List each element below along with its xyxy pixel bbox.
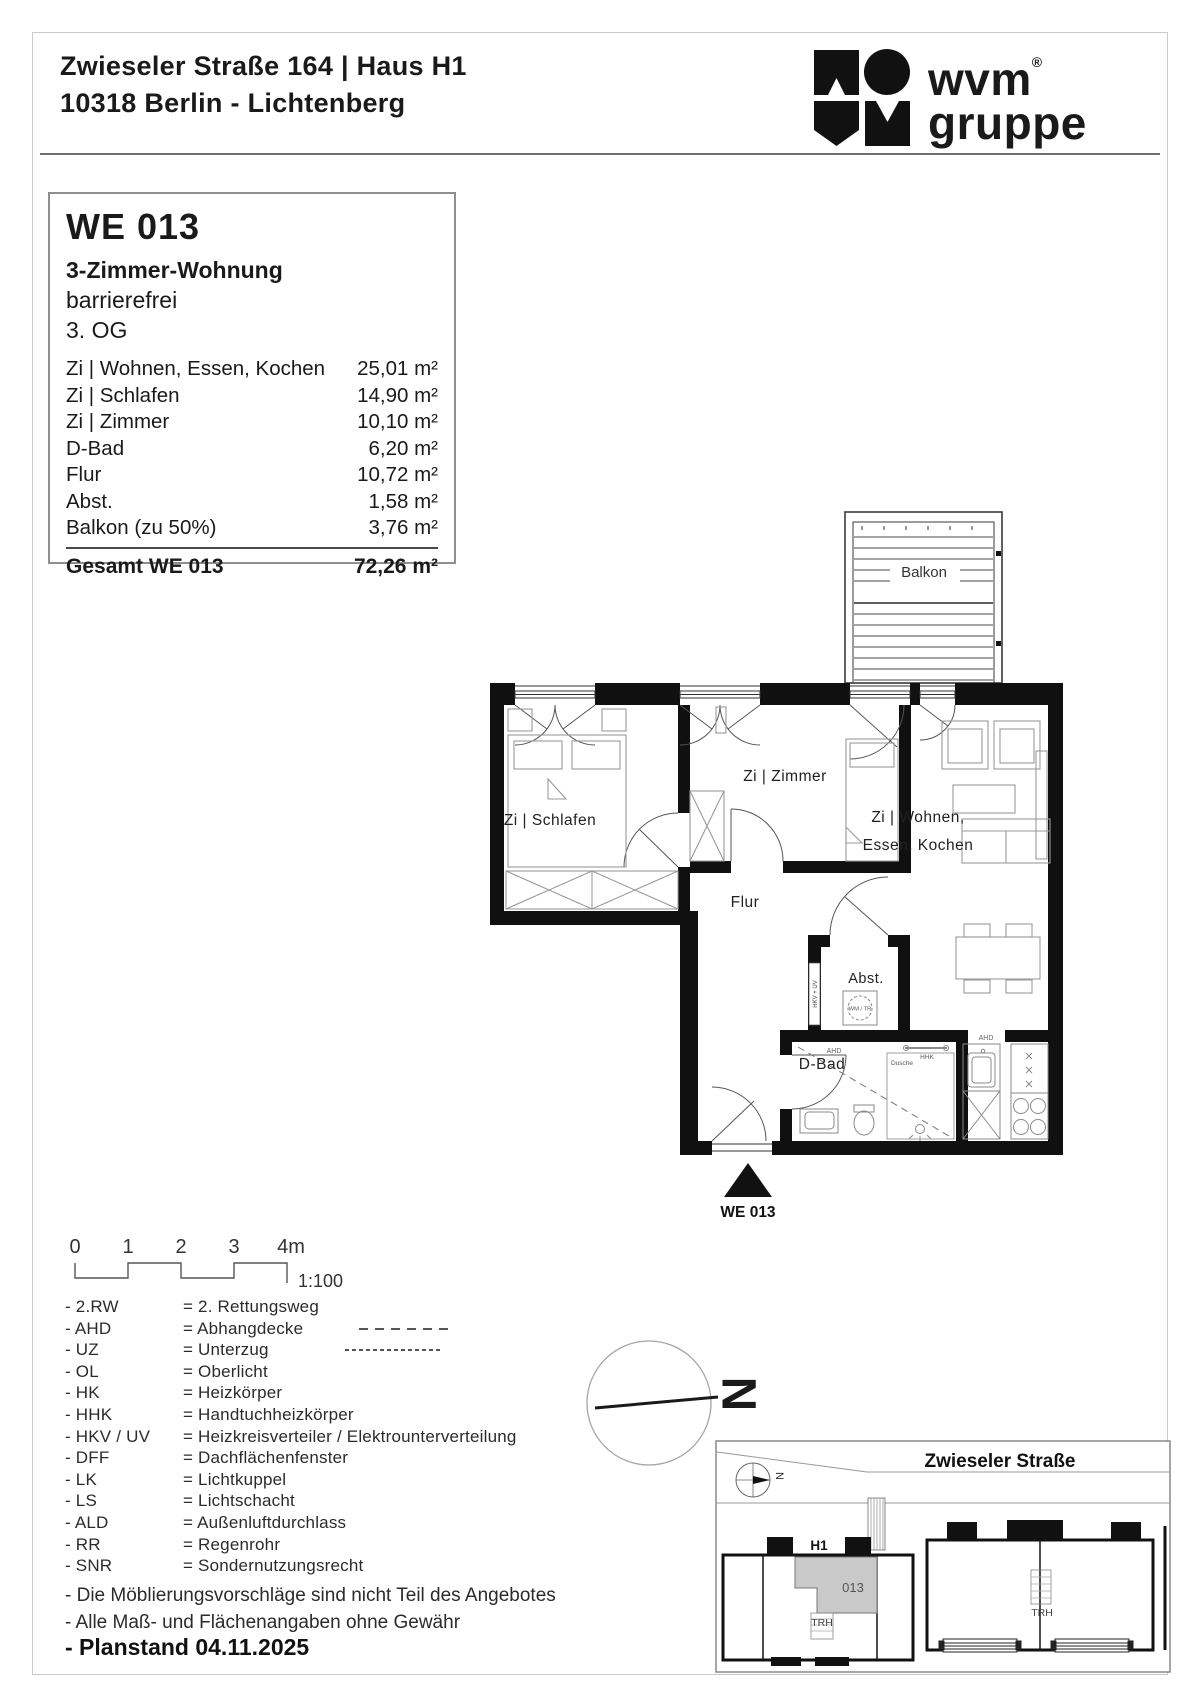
legend-meaning: = Abhangdecke <box>183 1318 303 1340</box>
room-area: 14,90 m² <box>357 383 438 410</box>
room-area: 10,10 m² <box>357 409 438 436</box>
room-label: Abst. <box>66 489 113 516</box>
table-row: Zi | Schlafen14,90 m² <box>66 383 438 410</box>
scale-bar: 0 1 2 3 4m 1:100 <box>55 1235 365 1297</box>
legend-row: - AHD= Abhangdecke <box>65 1318 625 1340</box>
north-label: N <box>712 1377 765 1412</box>
scale-tick: 0 <box>69 1236 80 1258</box>
trh-left-label: TRH <box>811 1617 833 1629</box>
legend-meaning: = 2. Rettungsweg <box>183 1296 319 1318</box>
wm-tr-label: WM / TR <box>849 1007 872 1013</box>
legend-abbr: - ALD <box>65 1512 183 1534</box>
room-label-schlafen: Zi | Schlafen <box>504 812 596 829</box>
legend-abbr: - SNR <box>65 1555 183 1577</box>
floor-plan: Balkon <box>450 495 1090 1225</box>
legend-abbr: - AHD <box>65 1318 183 1340</box>
legend-abbr: - UZ <box>65 1339 183 1361</box>
table-row: Balkon (zu 50%)3,76 m² <box>66 515 438 542</box>
building-right: TRH <box>927 1520 1165 1652</box>
table-row: Abst.1,58 m² <box>66 489 438 516</box>
room-area: 25,01 m² <box>357 356 438 383</box>
address-line2: 10318 Berlin - Lichtenberg <box>60 85 467 122</box>
legend-meaning: = Heizkörper <box>183 1382 282 1404</box>
door-swings <box>515 705 955 1151</box>
legend-row: - HK= Heizkörper <box>65 1382 625 1404</box>
legend-row: - HKV / UV= Heizkreisverteiler / Elektro… <box>65 1426 625 1448</box>
building-h1: 013 TRH <box>723 1537 913 1666</box>
legend-meaning: = Außenluftdurchlass <box>183 1512 346 1534</box>
legend-abbr: - DFF <box>65 1447 183 1469</box>
room-label: D-Bad <box>66 436 124 463</box>
total-area: 72,26 m² <box>354 555 438 579</box>
unit-013-label: 013 <box>842 1580 864 1595</box>
legend-row: - LS= Lichtschacht <box>65 1490 625 1512</box>
scale-tick: 2 <box>175 1236 186 1258</box>
unit-floor: 3. OG <box>66 317 438 344</box>
room-label: Zi | Wohnen, Essen, Kochen <box>66 356 325 383</box>
room-area: 3,76 m² <box>369 515 439 542</box>
scale-bar-line <box>75 1263 287 1283</box>
room-area-table: Zi | Wohnen, Essen, Kochen25,01 m² Zi | … <box>66 356 438 579</box>
scale-tick: 4m <box>277 1236 305 1258</box>
legend: - 2.RW= 2. Rettungsweg - AHD= Abhangdeck… <box>65 1296 625 1577</box>
legend-meaning: = Regenrohr <box>183 1534 280 1556</box>
dbad-door-gap <box>780 1055 792 1109</box>
legend-abbr: - 2.RW <box>65 1296 183 1318</box>
unit-type: 3-Zimmer-Wohnung <box>66 257 438 284</box>
total-label: Gesamt WE 013 <box>66 555 224 579</box>
room-label-balkon: Balkon <box>901 564 947 581</box>
address-line1: Zwieseler Straße 164 | Haus H1 <box>60 48 467 85</box>
walls <box>490 683 1063 1155</box>
dusche-label: Dusche <box>891 1060 913 1067</box>
unit-accessibility: barrierefrei <box>66 287 438 314</box>
legend-abbr: - RR <box>65 1534 183 1556</box>
table-row: D-Bad6,20 m² <box>66 436 438 463</box>
legend-meaning: = Lichtkuppel <box>183 1469 286 1491</box>
site-plan: Zwieseler Straße N 013 TRH H1 <box>715 1440 1171 1674</box>
room-label: Flur <box>66 462 101 489</box>
kitchen-ahd-label: AHD <box>979 1035 994 1042</box>
entrance-arrow-icon <box>724 1163 772 1197</box>
legend-abbr: - LK <box>65 1469 183 1491</box>
disclaimer-notes: - Die Möblierungsvorschläge sind nicht T… <box>65 1582 556 1636</box>
hkv-uv-label: HKV + UV <box>813 980 819 1008</box>
plan-date: - Planstand 04.11.2025 <box>65 1634 309 1661</box>
legend-row: - SNR= Sondernutzungsrecht <box>65 1555 625 1577</box>
room-label-wohnen-1: Zi | Wohnen, <box>871 809 964 826</box>
note-furnishing: - Die Möblierungsvorschläge sind nicht T… <box>65 1582 556 1609</box>
room-label: Balkon (zu 50%) <box>66 515 216 542</box>
site-north-label: N <box>773 1472 785 1480</box>
room-area: 10,72 m² <box>357 462 438 489</box>
legend-abbr: - HKV / UV <box>65 1426 183 1448</box>
room-label: Zi | Zimmer <box>66 409 169 436</box>
scale-tick: 3 <box>228 1236 239 1258</box>
building-h1-label: H1 <box>810 1538 828 1553</box>
legend-meaning: = Sondernutzungsrecht <box>183 1555 363 1577</box>
legend-meaning: = Lichtschacht <box>183 1490 295 1512</box>
dbad-ahd-label: AHD <box>827 1048 842 1055</box>
dotted-line-sample <box>345 1349 441 1351</box>
room-label-wohnen-2: Essen, Kochen <box>863 837 974 854</box>
street-label: Zwieseler Straße <box>924 1451 1075 1472</box>
legend-row: - DFF= Dachflächenfenster <box>65 1447 625 1469</box>
legend-row: - RR= Regenrohr <box>65 1534 625 1556</box>
room-area: 6,20 m² <box>369 436 439 463</box>
dashed-line-sample <box>359 1328 455 1330</box>
legend-meaning: = Unterzug <box>183 1339 269 1361</box>
legend-abbr: - OL <box>65 1361 183 1383</box>
logo-wordmark: wvm® gruppe <box>928 40 1087 145</box>
legend-abbr: - HK <box>65 1382 183 1404</box>
legend-row: - 2.RW= 2. Rettungsweg <box>65 1296 625 1318</box>
room-label-zimmer: Zi | Zimmer <box>743 768 827 785</box>
legend-abbr: - HHK <box>65 1404 183 1426</box>
table-row: Zi | Zimmer10,10 m² <box>66 409 438 436</box>
room-area: 1,58 m² <box>369 489 439 516</box>
windows <box>515 686 955 698</box>
legend-row: - LK= Lichtkuppel <box>65 1469 625 1491</box>
unit-id: WE 013 <box>66 206 438 248</box>
table-row: Zi | Wohnen, Essen, Kochen25,01 m² <box>66 356 438 383</box>
legend-abbr: - LS <box>65 1490 183 1512</box>
table-total-row: Gesamt WE 01372,26 m² <box>66 547 438 579</box>
note-measures: - Alle Maß- und Flächenangaben ohne Gewä… <box>65 1609 556 1636</box>
legend-row: - ALD= Außenluftdurchlass <box>65 1512 625 1534</box>
trh-right-label: TRH <box>1031 1607 1053 1619</box>
entrance-label: WE 013 <box>720 1204 776 1221</box>
balcony <box>845 512 1002 683</box>
unit-info-box: WE 013 3-Zimmer-Wohnung barrierefrei 3. … <box>48 192 456 564</box>
room-label-dbad: D-Bad <box>799 1056 845 1073</box>
scale-tick: 1 <box>122 1236 133 1258</box>
legend-row: - UZ= Unterzug <box>65 1339 625 1361</box>
legend-meaning: = Dachflächenfenster <box>183 1447 348 1469</box>
project-address: Zwieseler Straße 164 | Haus H1 10318 Ber… <box>60 48 467 122</box>
room-label-abst: Abst. <box>848 971 884 987</box>
header-divider <box>40 153 1160 155</box>
legend-row: - HHK= Handtuchheizkörper <box>65 1404 625 1426</box>
kitchen-fixtures <box>963 1044 1048 1139</box>
legend-meaning: = Oberlicht <box>183 1361 268 1383</box>
legend-meaning: = Handtuchheizkörper <box>183 1404 354 1426</box>
table-row: Flur10,72 m² <box>66 462 438 489</box>
room-label-flur: Flur <box>731 894 760 911</box>
logo-sub: gruppe <box>928 101 1087 145</box>
room-label: Zi | Schlafen <box>66 383 180 410</box>
legend-meaning: = Heizkreisverteiler / Elektrounterverte… <box>183 1426 517 1448</box>
registered-mark: ® <box>1032 54 1043 70</box>
legend-row: - OL= Oberlicht <box>65 1361 625 1383</box>
hhk-label: HHK <box>920 1054 934 1061</box>
wvm-logo-icon <box>812 48 912 148</box>
scale-ratio: 1:100 <box>298 1271 343 1291</box>
